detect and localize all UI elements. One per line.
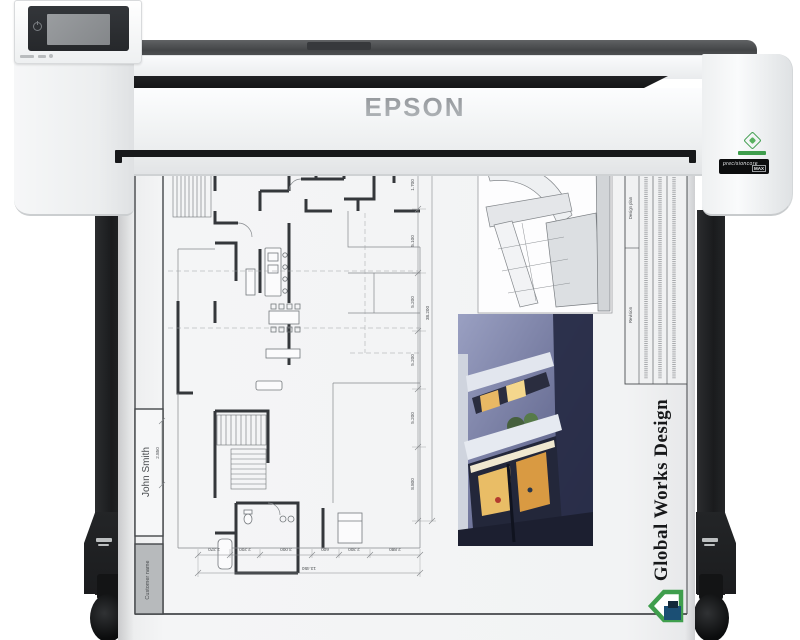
customer-name-value: John Smith [141, 447, 152, 497]
panel-bezel [28, 6, 129, 51]
eco-cert-bar [738, 151, 766, 155]
power-button-icon [33, 22, 42, 31]
revision-table [625, 156, 687, 384]
svg-text:2.880: 2.880 [389, 547, 401, 552]
dimension-total-vertical: 38.200 [425, 306, 430, 320]
svg-text:8.800: 8.800 [410, 478, 415, 490]
svg-text:2.200: 2.200 [239, 547, 251, 552]
epson-label-left-leg [96, 538, 116, 548]
epson-logo: EPSON [320, 92, 510, 123]
svg-text:600: 600 [321, 547, 329, 552]
control-panel [14, 0, 142, 64]
svg-text:2.370: 2.370 [208, 547, 220, 552]
panel-branding-marks [20, 54, 54, 59]
svg-text:5.200: 5.200 [410, 412, 415, 424]
precisioncore-badge: precisioncore MAX [719, 159, 769, 174]
left-end-cap [14, 54, 134, 216]
reference-dashed-lines [168, 213, 420, 353]
svg-text:5.200: 5.200 [410, 296, 415, 308]
dimension-left-label: 2.850 [155, 447, 160, 459]
dimension-total-bottom: 13.450 [302, 566, 316, 571]
house-photo [458, 314, 593, 546]
top-cover [133, 55, 792, 79]
touchscreen [47, 14, 110, 45]
right-end-cap: precisioncore MAX [702, 54, 793, 216]
printed-sheet: John Smith Customer name [118, 153, 695, 640]
epson-label-right-leg [702, 538, 722, 548]
roll-cover-handle [307, 42, 371, 50]
product-photo-epson-plotter: John Smith Customer name [0, 0, 800, 640]
caster-wheel-right [693, 594, 729, 640]
stairs [173, 173, 266, 489]
paper-right-shade [685, 153, 695, 640]
company-name: Global Works Design [651, 399, 672, 581]
eco-cert-icon [743, 131, 761, 149]
svg-text:5.200: 5.200 [410, 354, 415, 366]
dimension-chain-vertical [412, 158, 436, 524]
paper-left-curl [118, 153, 134, 640]
customer-name-label: Customer name [145, 560, 151, 599]
floor-plan-walls [178, 157, 420, 573]
badge-max-text: MAX [752, 165, 766, 172]
svg-text:5.100: 5.100 [410, 235, 415, 247]
svg-text:1.700: 1.700 [410, 179, 415, 191]
paper-cutter-bar [115, 150, 696, 157]
table-header-design-plan: Design plan [628, 196, 633, 219]
table-header-revision: Revision [628, 306, 633, 323]
svg-text:2.300: 2.300 [348, 547, 360, 552]
svg-text:3.000: 3.000 [280, 547, 292, 552]
company-logo-icon [651, 592, 681, 620]
wireframe-render [478, 158, 612, 313]
architectural-print: John Smith Customer name [118, 153, 695, 640]
